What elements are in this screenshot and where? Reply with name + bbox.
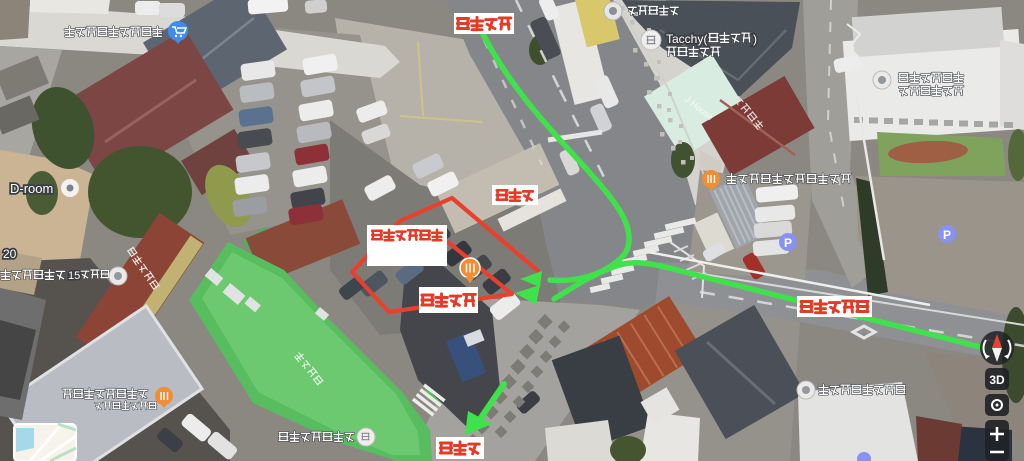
svg-text:): ) [753, 32, 757, 46]
svg-text:Tacchy(: Tacchy( [666, 32, 707, 46]
svg-text:P: P [784, 236, 792, 250]
svg-text:15: 15 [68, 270, 80, 282]
svg-text:20: 20 [3, 247, 17, 261]
svg-text:3D: 3D [989, 373, 1005, 387]
svg-text:P: P [943, 228, 951, 242]
svg-text:D-room: D-room [10, 181, 53, 196]
